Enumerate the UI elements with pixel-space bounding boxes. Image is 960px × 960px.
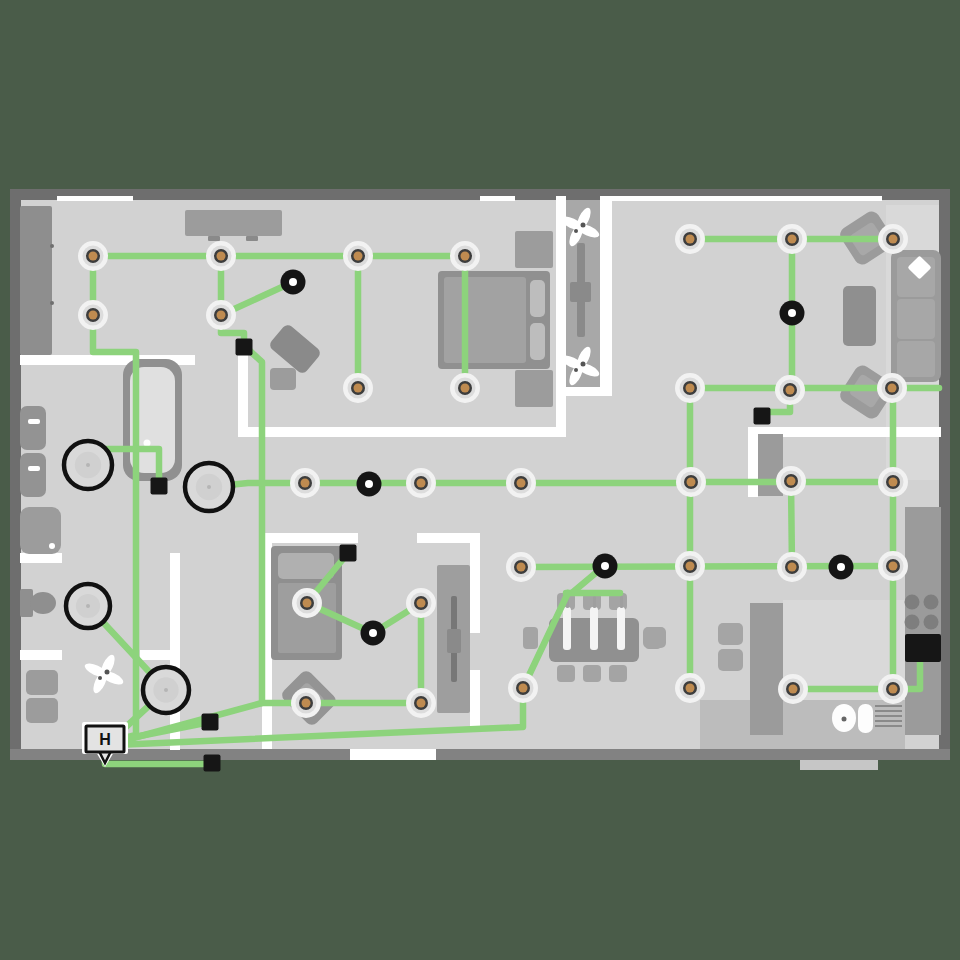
ceiling-light-bulb [519, 684, 528, 693]
stove-burner [905, 595, 920, 610]
ceiling-light-bulb [517, 479, 526, 488]
speaker-center-dot [164, 688, 168, 692]
candle [563, 607, 571, 650]
sink-faucet [28, 466, 40, 471]
speaker-center-dot [207, 485, 211, 489]
bed-pillow [530, 280, 545, 317]
ceiling-light-bulb [89, 311, 98, 320]
dining-chair [557, 665, 575, 682]
inner-wall [238, 427, 566, 437]
bed-double-mattress [444, 277, 526, 363]
sofa-cushion [897, 341, 935, 377]
ceiling-light-bulb [788, 235, 797, 244]
switch-device[interactable] [754, 408, 771, 425]
inner-wall [20, 553, 62, 563]
ceiling-light-bulb [686, 684, 695, 693]
ceiling-light-bulb [889, 562, 898, 571]
nightstand [515, 231, 553, 268]
ceiling-light-bulb [686, 562, 695, 571]
inner-wall [470, 670, 480, 732]
ceiling-light-bulb [354, 384, 363, 393]
ceiling-light-bulb [217, 252, 226, 261]
stool [718, 649, 743, 671]
wardrobe-handle [50, 244, 54, 248]
wall-bottom [10, 749, 950, 760]
power-panel-device[interactable] [905, 634, 941, 662]
ceiling-light-bulb [888, 384, 897, 393]
inner-wall [20, 650, 62, 660]
ceiling-light-bulb [786, 386, 795, 395]
inner-wall [238, 348, 248, 437]
window-top-center [480, 196, 515, 201]
wall-left [10, 189, 21, 760]
ceiling-light-bulb [301, 479, 310, 488]
sink-faucet [28, 419, 40, 424]
ceiling-light-bulb [417, 599, 426, 608]
ceiling-light-bulb [417, 699, 426, 708]
plant-icon [574, 229, 578, 233]
inner-wall [140, 650, 180, 660]
balcony-box [570, 282, 591, 302]
table-leg [208, 236, 220, 241]
switch-device[interactable] [202, 714, 219, 731]
dining-chair [609, 665, 627, 682]
ceiling-light-bulb [686, 235, 695, 244]
switch-device[interactable] [340, 545, 357, 562]
ceiling-light-bulb [889, 235, 898, 244]
plant-icon [105, 670, 110, 675]
ceiling-light-bulb [517, 563, 526, 572]
side-table [270, 368, 296, 390]
ceiling-light-bulb [417, 479, 426, 488]
ceiling-light-bulb [787, 477, 796, 486]
inner-wall [748, 437, 758, 497]
ceiling-light-bulb [889, 478, 898, 487]
stool [643, 627, 666, 648]
sofa-cushion [897, 299, 935, 339]
inner-wall [470, 533, 480, 633]
dining-chair [583, 665, 601, 682]
ceiling-light-bulb [303, 599, 312, 608]
tv-mount [447, 629, 461, 653]
coffee-table [843, 286, 876, 346]
sensor-center [365, 480, 373, 488]
sensor-center [369, 629, 377, 637]
sensor-center [601, 562, 609, 570]
plant-icon [581, 223, 586, 228]
wardrobe-handle [50, 301, 54, 305]
nightstand [515, 370, 553, 407]
bed-pillow [530, 323, 545, 360]
candle-wick [620, 596, 623, 608]
sink-drain [842, 717, 847, 722]
kitchen-counter-bottom [700, 700, 905, 749]
ceiling-light-bulb [889, 685, 898, 694]
sensor-center [289, 278, 297, 286]
wardrobe [20, 206, 52, 355]
shower-drain [49, 543, 55, 549]
speaker-center-dot [86, 463, 90, 467]
door-bottom [350, 749, 436, 760]
ceiling-light-bulb [686, 384, 695, 393]
ceiling-light-bulb [461, 252, 470, 261]
stool [718, 623, 743, 645]
inner-wall [556, 387, 612, 396]
inner-wall [600, 196, 612, 392]
tub-faucet [144, 440, 151, 447]
candle-wick [593, 596, 596, 608]
switch-device[interactable] [151, 478, 168, 495]
plant-icon [98, 676, 102, 680]
table-leg [246, 236, 258, 241]
toilet-bowl [30, 592, 56, 614]
ceiling-light-bulb [788, 563, 797, 572]
dining-chair [523, 627, 538, 649]
ceiling-light-bulb [89, 252, 98, 261]
plant-icon [574, 368, 578, 372]
stove-burner [905, 615, 920, 630]
inner-wall [270, 533, 358, 543]
console-table [185, 210, 282, 236]
switch-device[interactable] [236, 339, 253, 356]
switch-device[interactable] [204, 755, 221, 772]
ceiling-light-bulb [687, 478, 696, 487]
ceiling-light-bulb [302, 699, 311, 708]
candle [590, 607, 598, 650]
speaker-center-dot [86, 604, 90, 608]
ceiling-light-bulb [354, 252, 363, 261]
inner-wall [556, 196, 566, 437]
ceiling-light-bulb [217, 311, 226, 320]
dryer [26, 698, 58, 723]
window-top-left [57, 196, 133, 201]
bed-single-pillow [278, 553, 334, 579]
plant-icon [581, 362, 586, 367]
ceiling-light-bulb [461, 384, 470, 393]
washer [26, 670, 58, 695]
hub-label: H [99, 731, 111, 748]
sensor-center [837, 563, 845, 571]
candle [617, 607, 625, 650]
bathroom-sink [20, 453, 46, 497]
cutting-board [858, 704, 873, 733]
smart-home-floorplan: H [0, 0, 960, 960]
window-top-right [612, 196, 882, 201]
stove-burner [924, 615, 939, 630]
stove-burner [924, 595, 939, 610]
kitchen-cabinet-left [750, 603, 783, 735]
ceiling-light-bulb [789, 685, 798, 694]
sensor-center [788, 309, 796, 317]
floorplan-canvas: H [0, 0, 960, 960]
bathroom-sink [20, 406, 46, 450]
shower [20, 507, 61, 554]
